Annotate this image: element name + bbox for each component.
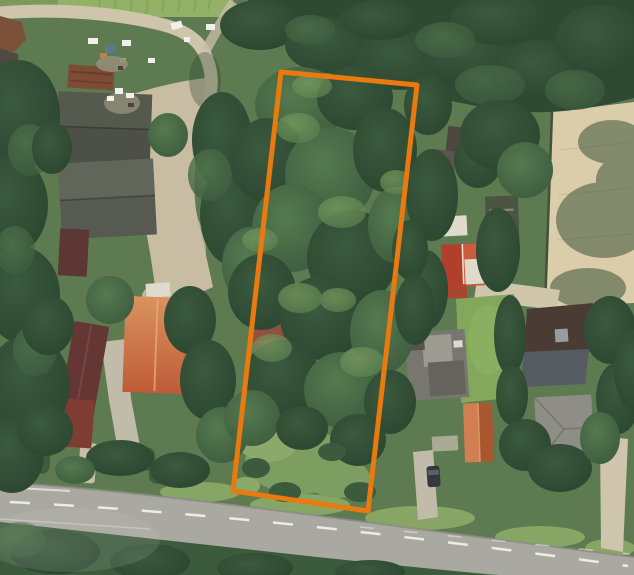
concrete-pad bbox=[432, 435, 459, 451]
parked-car bbox=[426, 466, 440, 488]
aerial-map-canvas bbox=[0, 0, 634, 575]
white-outbuilding bbox=[146, 282, 171, 298]
graphite-roof-house bbox=[521, 303, 593, 387]
skylight bbox=[555, 329, 569, 343]
barn-south bbox=[58, 159, 157, 240]
aerial-map bbox=[0, 0, 634, 575]
riding-arena bbox=[545, 102, 634, 308]
orange-roof-house bbox=[463, 402, 494, 462]
maroon-outbuilding bbox=[58, 228, 89, 276]
